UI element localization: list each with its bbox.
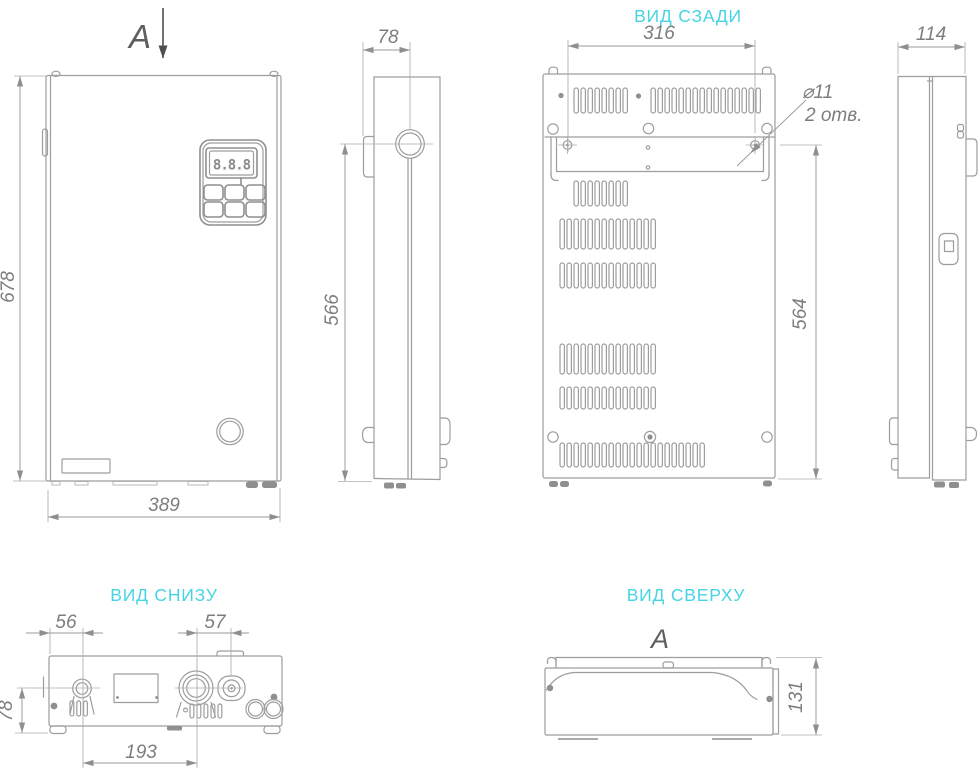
side-switch bbox=[939, 234, 958, 265]
rear-body bbox=[543, 67, 775, 487]
front-body bbox=[43, 71, 282, 488]
hanger-hook bbox=[548, 658, 557, 667]
hole-count-label: 2 отв. bbox=[804, 105, 862, 126]
dim-rear-height: 564 bbox=[778, 145, 822, 479]
foot bbox=[246, 482, 258, 489]
svg-text:564: 564 bbox=[790, 298, 811, 330]
dim-side-depth: 78 bbox=[363, 27, 410, 136]
svg-text:389: 389 bbox=[148, 495, 180, 516]
side-view-right: 114 bbox=[890, 24, 978, 488]
hanger-hook bbox=[762, 658, 771, 667]
hinge-bracket-small bbox=[440, 459, 447, 468]
top-body bbox=[545, 658, 779, 740]
dim-bottom-right: 57 bbox=[178, 612, 249, 768]
foot bbox=[264, 726, 280, 734]
side-view-left: 78 566 bbox=[322, 27, 450, 489]
screw-dot bbox=[51, 703, 58, 710]
svg-text:131: 131 bbox=[786, 681, 807, 713]
cable-cutout bbox=[114, 674, 158, 703]
mounting-hole-right bbox=[746, 136, 765, 154]
dim-pipe-height: 566 bbox=[322, 144, 372, 482]
side-right-body bbox=[890, 77, 978, 489]
wall-hook-bottom bbox=[363, 428, 375, 443]
vent-slots bbox=[560, 88, 760, 467]
foot bbox=[549, 481, 558, 487]
svg-text:78: 78 bbox=[0, 700, 17, 722]
keypad-button bbox=[246, 185, 265, 200]
bottom-body bbox=[44, 651, 284, 734]
top-view: ВИД СВЕРХУ A 131 bbox=[545, 585, 822, 739]
svg-text:56: 56 bbox=[55, 612, 77, 633]
main-pipe-port bbox=[177, 671, 216, 717]
connector-tab bbox=[958, 132, 964, 139]
screw-dot bbox=[558, 93, 563, 98]
foot bbox=[384, 483, 394, 489]
screw-dot bbox=[766, 696, 772, 702]
screw-dot bbox=[547, 685, 553, 691]
dim-side-right-depth: 114 bbox=[898, 24, 965, 74]
hanger-tab bbox=[549, 67, 558, 74]
dim-top-depth: 131 bbox=[776, 658, 822, 736]
center-tab bbox=[167, 726, 182, 731]
side-flange bbox=[773, 669, 779, 734]
wall-hook-top bbox=[966, 139, 977, 176]
svg-text:78: 78 bbox=[377, 27, 399, 48]
svg-text:566: 566 bbox=[322, 294, 343, 326]
foot bbox=[949, 482, 959, 488]
front-view: A bbox=[0, 8, 281, 522]
front-port-circle bbox=[217, 418, 243, 444]
rating-plate bbox=[62, 459, 110, 473]
bottom-view-title: ВИД СНИЗУ bbox=[110, 585, 218, 605]
keypad-button bbox=[246, 202, 265, 217]
dim-bottom-span: 193 bbox=[83, 742, 197, 763]
dim-front-height: 678 bbox=[0, 76, 46, 481]
foot bbox=[396, 483, 406, 489]
technical-drawing-sheet: A bbox=[0, 0, 980, 769]
keypad-button bbox=[204, 185, 223, 200]
hinge-bracket-small bbox=[892, 459, 899, 471]
keypad bbox=[204, 185, 265, 217]
mounting-hole-left bbox=[558, 136, 577, 154]
bracket-profile-line bbox=[547, 673, 758, 700]
top-tab bbox=[217, 651, 244, 656]
screw-dot bbox=[636, 93, 641, 98]
keypad-button bbox=[225, 202, 244, 217]
svg-text:678: 678 bbox=[0, 271, 19, 303]
rear-view: ВИД СЗАДИ bbox=[543, 6, 862, 487]
svg-text:114: 114 bbox=[916, 24, 946, 45]
wall-hook-bottom bbox=[966, 428, 977, 441]
svg-text:57: 57 bbox=[204, 612, 227, 633]
hinge-bracket bbox=[440, 418, 450, 445]
bottom-view: ВИД СНИЗУ bbox=[0, 585, 283, 768]
foot bbox=[934, 482, 945, 488]
top-view-title: ВИД СВЕРХУ bbox=[627, 585, 746, 605]
svg-text:193: 193 bbox=[125, 742, 157, 763]
dim-front-width: 389 bbox=[48, 488, 280, 522]
center-tab bbox=[663, 662, 674, 668]
section-label-a-top: A bbox=[649, 624, 669, 654]
foot bbox=[763, 481, 772, 487]
display-value: 8.8.8 bbox=[213, 158, 251, 174]
dim-rear-width: 316 bbox=[568, 23, 755, 152]
foot bbox=[262, 482, 277, 489]
wall-hook-top bbox=[364, 137, 375, 178]
hole-diameter-label: ⌀11 bbox=[802, 82, 833, 103]
hanger-tab bbox=[763, 67, 772, 74]
cable-glands bbox=[246, 700, 283, 719]
foot bbox=[560, 481, 569, 487]
connector-tab bbox=[958, 125, 964, 132]
foot bbox=[50, 726, 66, 734]
control-panel: 8.8.8 bbox=[200, 140, 266, 225]
side-left-body bbox=[340, 77, 450, 489]
mounting-bracket bbox=[545, 136, 775, 181]
svg-text:316: 316 bbox=[643, 23, 675, 44]
hinge-bracket bbox=[890, 418, 899, 445]
vent-slots-small bbox=[190, 704, 222, 718]
section-label-a: A bbox=[127, 18, 151, 55]
keypad-button bbox=[204, 202, 223, 217]
keypad-button bbox=[225, 185, 244, 200]
door-hinge bbox=[43, 129, 48, 156]
